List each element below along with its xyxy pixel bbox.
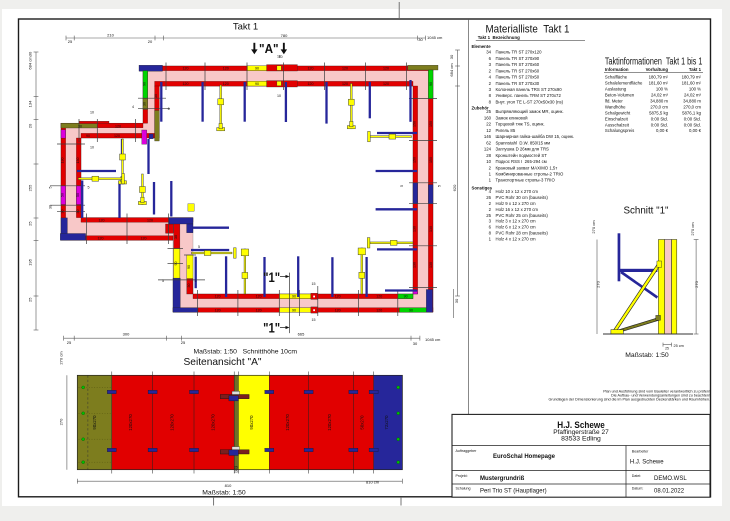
svg-text:Peri Trio ST (Hauptlager): Peri Trio ST (Hauptlager) [480,488,547,494]
svg-text:150: 150 [429,121,433,127]
svg-text:Maßstab: 1:50: Maßstab: 1:50 [625,352,669,359]
svg-text:Колонная панель TRS ST 270x90: Колонная панель TRS ST 270x90 [496,87,563,92]
svg-text:120: 120 [98,236,104,240]
svg-text:10: 10 [90,110,94,114]
svg-text:Wandhöhe: Wandhöhe [605,104,626,109]
svg-text:30: 30 [418,37,423,42]
svg-text:50x270: 50x270 [360,415,365,430]
svg-text:25: 25 [665,346,669,350]
svg-text:30: 30 [61,210,65,214]
svg-text:Schalgewicht: Schalgewicht [605,110,631,115]
svg-text:50: 50 [76,193,80,197]
svg-text:Schnitt "1": Schnitt "1" [623,205,669,216]
svg-text:30: 30 [154,94,158,98]
svg-text:15: 15 [312,282,316,286]
svg-text:34: 34 [486,50,491,55]
svg-text:"1": "1" [263,320,280,335]
svg-text:30: 30 [142,102,146,106]
svg-text:30: 30 [76,210,80,214]
svg-text:PVC Rohr 28 cm (bauseits): PVC Rohr 28 cm (bauseits) [496,231,549,236]
svg-text:270 cm: 270 cm [591,220,596,234]
svg-text:25: 25 [486,213,491,218]
svg-text:Транспортные стропы-3 TRIO: Транспортные стропы-3 TRIO [496,178,556,183]
svg-text:684 cm: 684 cm [28,56,33,70]
svg-text:Materialliste Takt 1: Materialliste Takt 1 [486,23,570,35]
svg-text:Datei:: Datei: [632,474,641,478]
svg-text:130: 130 [76,158,80,164]
svg-text:270: 270 [596,280,601,287]
svg-text:25: 25 [181,340,186,345]
svg-text:90: 90 [187,265,191,269]
svg-text:Крановый захват MAXIMO 1,5т: Крановый захват MAXIMO 1,5т [496,165,558,170]
svg-text:Holz 3 x 12 x 270 cm: Holz 3 x 12 x 270 cm [496,219,537,224]
svg-text:270 cm: 270 cm [59,351,64,365]
svg-text:22: 22 [486,122,491,127]
svg-text:130: 130 [429,226,433,232]
svg-text:30: 30 [78,124,82,128]
svg-text:120: 120 [308,67,314,71]
svg-text:255: 255 [28,184,33,191]
svg-text:5: 5 [198,245,200,249]
svg-text:15: 15 [312,318,316,322]
svg-text:Выпрямляющий замок MR, оцинк.: Выпрямляющий замок MR, оцинк. [496,109,564,114]
svg-text:130: 130 [429,262,433,268]
svg-text:684 cm: 684 cm [449,63,454,77]
svg-text:120: 120 [141,236,147,240]
svg-text:270: 270 [59,418,64,425]
svg-text:28: 28 [486,153,491,158]
svg-text:120: 120 [308,82,314,86]
svg-text:30: 30 [28,51,33,56]
svg-text:Holz 9 x 12 x 270 cm: Holz 9 x 12 x 270 cm [496,201,537,206]
svg-text:180,79 m²: 180,79 m² [649,75,669,80]
svg-text:120: 120 [342,67,348,71]
svg-text:EuroSchal Homepage: EuroSchal Homepage [493,454,556,460]
svg-text:120: 120 [335,308,341,312]
svg-text:120: 120 [376,308,382,312]
svg-text:0,00 €: 0,00 € [656,128,669,133]
svg-text:10: 10 [486,159,491,164]
svg-text:Ригель 85: Ригель 85 [496,128,516,133]
svg-text:120: 120 [215,308,221,312]
svg-text:Datum:: Datum: [632,486,644,490]
svg-text:130: 130 [412,226,416,232]
svg-text:Taktinformationen Takt 1 bis: Taktinformationen Takt 1 bis 1 [605,56,703,67]
svg-text:90: 90 [86,134,90,138]
svg-text:120: 120 [114,134,120,138]
svg-text:30: 30 [413,341,418,346]
svg-text:H.J. Schewe: H.J. Schewe [630,460,664,466]
svg-text:25: 25 [28,297,33,302]
svg-text:30: 30 [187,284,191,288]
svg-text:90: 90 [292,295,296,299]
svg-text:90: 90 [429,82,433,86]
svg-text:270,0 cm: 270,0 cm [683,104,701,109]
svg-text:Schalungspreis: Schalungspreis [605,128,634,133]
svg-text:1045 cm: 1045 cm [425,337,441,342]
svg-text:810: 810 [225,483,232,488]
svg-text:270,0 cm: 270,0 cm [650,104,668,109]
svg-text:5: 5 [400,185,404,187]
svg-text:Spannstahl D.W. 850/15 мм: Spannstahl D.W. 850/15 мм [496,140,551,145]
svg-text:5: 5 [195,279,197,283]
svg-text:120: 120 [256,308,262,312]
svg-text:30: 30 [174,235,178,239]
svg-text:90: 90 [255,67,259,71]
svg-text:Универс. панель TRM ST 270x72: Универс. панель TRM ST 270x72 [496,93,562,98]
svg-text:120x270: 120x270 [211,414,216,431]
svg-text:120x270: 120x270 [128,414,133,431]
svg-text:120: 120 [183,82,189,86]
svg-text:Панель TR ST 270x60: Панель TR ST 270x60 [496,62,540,67]
svg-text:Schalung: Schalung [456,486,471,490]
svg-text:6: 6 [168,107,170,111]
svg-text:12: 12 [486,128,491,133]
svg-text:Beton-Volumen: Beton-Volumen [605,93,635,98]
svg-text:08.01.2022: 08.01.2022 [654,488,685,494]
svg-text:180,79 m²: 180,79 m² [682,75,702,80]
svg-text:PVC Rohr 25 cm (bauseits): PVC Rohr 25 cm (bauseits) [496,213,549,218]
svg-text:Takt 1: Takt 1 [689,67,702,72]
svg-text:195: 195 [28,258,33,265]
svg-text:30: 30 [454,298,459,303]
svg-text:120: 120 [223,67,229,71]
svg-text:Панель TR ST 270x30: Панель TR ST 270x30 [496,81,540,86]
svg-text:124: 124 [484,147,492,152]
svg-text:90: 90 [409,308,413,312]
svg-text:120: 120 [183,67,189,71]
svg-text:34,880 m: 34,880 m [650,98,668,103]
svg-text:5: 5 [162,279,164,283]
svg-text:Подкос RSS I 265-294 см: Подкос RSS I 265-294 см [496,159,547,164]
svg-text:Holz 4 x 12 x 270 cm: Holz 4 x 12 x 270 cm [496,236,537,241]
svg-text:Панель TR ST 270x120: Панель TR ST 270x120 [496,50,543,55]
svg-text:Schalelementfläche: Schalelementfläche [605,81,643,86]
svg-text:0:00 Std.: 0:00 Std. [651,116,668,121]
svg-text:120: 120 [99,218,105,222]
svg-text:10: 10 [277,54,281,58]
svg-text:PVC Rohr 30 cm (bauseits): PVC Rohr 30 cm (bauseits) [496,195,549,200]
svg-text:50: 50 [61,193,65,197]
svg-text:Holz 10 x 12 x 270 cm: Holz 10 x 12 x 270 cm [496,189,539,194]
svg-text:20: 20 [28,123,33,128]
svg-text:0:00 Std.: 0:00 Std. [684,116,701,121]
svg-text:270 cm: 270 cm [690,222,695,236]
svg-text:34,880 m: 34,880 m [683,98,701,103]
svg-text:810 cm: 810 cm [366,479,380,484]
svg-text:120: 120 [147,218,153,222]
svg-text:210: 210 [107,32,114,37]
svg-text:Auslastung: Auslastung [605,87,627,92]
svg-text:120x270: 120x270 [285,414,290,431]
svg-text:120: 120 [215,295,221,299]
svg-text:5: 5 [49,187,53,189]
svg-text:10: 10 [277,94,281,98]
svg-text:Takt 1: Takt 1 [233,21,258,32]
svg-text:90: 90 [404,295,408,299]
svg-text:90: 90 [292,308,296,312]
svg-text:24,02 m³: 24,02 m³ [684,93,702,98]
svg-text:1045 cm: 1045 cm [427,35,443,40]
svg-text:72x270: 72x270 [384,415,389,430]
svg-text:24,02 m³: 24,02 m³ [651,93,669,98]
svg-text:Комбинированные стропы-2 TRIO: Комбинированные стропы-2 TRIO [496,172,565,177]
svg-text:Einschalzeit: Einschalzeit [605,116,629,121]
svg-text:120: 120 [256,295,262,299]
svg-text:100 %: 100 % [656,87,668,92]
svg-text:25 cm: 25 cm [674,344,684,348]
svg-text:lfd. Meter: lfd. Meter [605,98,623,103]
svg-text:120: 120 [223,82,229,86]
svg-text:20: 20 [148,39,153,44]
svg-text:26: 26 [486,195,491,200]
svg-text:0,00 €: 0,00 € [689,128,702,133]
svg-text:160: 160 [484,115,492,120]
svg-text:90: 90 [143,82,147,86]
svg-text:120x270: 120x270 [169,414,174,431]
svg-text:25: 25 [234,469,238,473]
svg-text:Заглушка D 26мм для TRS: Заглушка D 26мм для TRS [496,147,550,152]
svg-text:300: 300 [123,332,130,337]
svg-text:100 %: 100 % [689,87,701,92]
svg-text:120x270: 120x270 [327,414,332,431]
svg-text:181,60 m²: 181,60 m² [682,81,702,86]
svg-text:Holz 16 x 12 x 270 cm: Holz 16 x 12 x 270 cm [496,207,539,212]
svg-text:Schalfläche: Schalfläche [605,75,628,80]
svg-text:90: 90 [174,262,178,266]
svg-text:30: 30 [49,205,53,209]
svg-text:83533 Edling: 83533 Edling [561,436,601,443]
svg-text:Bearbeiter: Bearbeiter [632,449,649,453]
svg-text:90: 90 [255,82,259,86]
svg-text:Auftraggeber: Auftraggeber [456,449,478,453]
svg-text:120: 120 [115,124,121,128]
svg-text:25: 25 [67,340,72,345]
svg-text:25: 25 [486,109,491,114]
svg-text:5: 5 [88,185,90,189]
svg-text:0:00 Std.: 0:00 Std. [651,122,668,127]
svg-text:Information: Information [605,67,629,72]
svg-text:Внут. угол TE L-ST 270x50x30 (: Внут. угол TE L-ST 270x50x30 (ns) [496,99,564,104]
svg-text:Шарнирная гайка-шайба DW 15, о: Шарнирная гайка-шайба DW 15, оцинк. [496,134,575,139]
svg-text:181,60 m²: 181,60 m² [649,81,669,86]
svg-text:0:00 Std.: 0:00 Std. [684,122,701,127]
svg-text:Панель TR ST 270x60: Панель TR ST 270x60 [496,68,540,73]
svg-text:Holz 6 x 12 x 270 cm: Holz 6 x 12 x 270 cm [496,225,537,230]
svg-text:130: 130 [61,158,65,164]
svg-text:DEMO.WSL: DEMO.WSL [654,476,687,482]
svg-text:Takt 1 Bezeichnung: Takt 1 Bezeichnung [478,35,520,40]
svg-text:665: 665 [298,332,305,337]
svg-text:Maßstab: 1:50: Maßstab: 1:50 [202,490,246,497]
svg-text:4: 4 [132,105,134,109]
svg-text:25: 25 [68,39,73,44]
svg-text:270: 270 [694,280,699,287]
svg-text:134: 134 [28,100,33,107]
svg-text:120: 120 [342,82,348,86]
svg-text:"1": "1" [263,270,280,285]
svg-text:146: 146 [484,134,492,139]
svg-text:Панель TR ST 270x90: Панель TR ST 270x90 [496,56,540,61]
svg-text:150: 150 [412,157,416,163]
svg-text:150: 150 [412,121,416,127]
svg-text:Кронштейн подмостей ST: Кронштейн подмостей ST [496,153,548,158]
svg-text:Ausschalzeit: Ausschalzeit [605,122,630,127]
svg-text:Торцевой тяж TS, оцинк.: Торцевой тяж TS, оцинк. [496,122,545,127]
svg-text:62: 62 [486,140,491,145]
svg-text:90x270: 90x270 [249,415,254,430]
svg-text:120: 120 [376,295,382,299]
svg-text:150: 150 [429,157,433,163]
svg-text:120: 120 [383,82,389,86]
svg-text:Замок клиновой: Замок клиновой [496,115,529,120]
svg-text:5875,5 kg: 5875,5 kg [649,110,668,115]
svg-text:130: 130 [412,262,416,268]
svg-text:Grundlagen der Dimensionierung: Grundlagen der Dimensionierung sind die … [548,398,710,402]
svg-text:90x270: 90x270 [92,415,97,430]
svg-text:Maßstab: 1:50 Schnitthöhe 10: Maßstab: 1:50 Schnitthöhe 10cm [194,348,298,355]
svg-text:780: 780 [281,33,288,38]
svg-text:5: 5 [438,185,442,187]
svg-text:10: 10 [90,146,94,150]
svg-text:5876,1 kg: 5876,1 kg [682,110,701,115]
svg-text:120: 120 [335,295,341,299]
svg-text:Vorhaltung: Vorhaltung [646,67,669,72]
svg-text:Mustergrundriß: Mustergrundriß [480,476,525,482]
svg-text:Панель TR ST 270x50: Панель TR ST 270x50 [496,75,540,80]
svg-text:25: 25 [28,221,33,226]
svg-text:620: 620 [452,184,457,191]
svg-text:120: 120 [383,67,389,71]
svg-text:Projekt:: Projekt: [456,474,468,478]
svg-text:Seitenansicht "A": Seitenansicht "A" [183,357,261,368]
svg-text:"A": "A" [259,41,279,56]
svg-text:30: 30 [449,54,454,59]
svg-text:Elemente: Elemente [472,44,492,49]
